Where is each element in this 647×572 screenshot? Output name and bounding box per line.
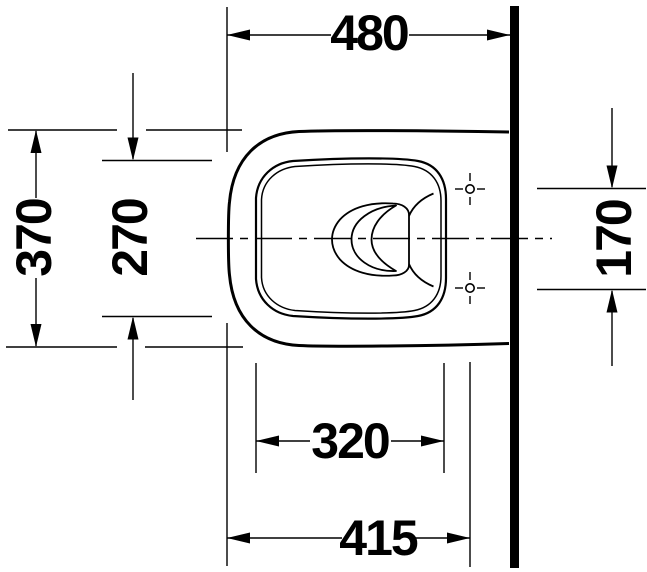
arrow-down-icon: [607, 166, 618, 189]
dimension-label-320: 320: [311, 413, 389, 469]
fixing-hole-marker-bottom: [455, 272, 485, 304]
arrow-up-icon: [607, 290, 618, 313]
technical-drawing-canvas: 480 370 270 170 320 415: [0, 0, 647, 572]
flush-rim-connector-top: [409, 194, 434, 217]
arrow-left-icon: [227, 30, 250, 41]
toilet-plan-view-drawing: 480 370 270 170 320 415: [0, 0, 647, 572]
dimension-label-270: 270: [102, 199, 158, 277]
dimension-overall-width: 370: [6, 130, 62, 347]
dimension-label-480: 480: [330, 5, 408, 61]
dimension-overall-depth: 480: [227, 5, 510, 61]
dimension-label-370: 370: [6, 199, 62, 277]
dimension-fixing-holes-spacing: 170: [586, 108, 642, 366]
dimension-bowl-inner-length: 320: [256, 413, 444, 469]
arrow-up-icon: [31, 130, 42, 153]
flush-rim-connector-bottom: [409, 264, 434, 287]
arrow-right-icon: [447, 533, 470, 544]
arrow-down-icon: [128, 138, 139, 161]
dimension-label-415: 415: [339, 510, 418, 566]
fixing-hole-icon: [466, 185, 474, 193]
arrow-down-icon: [31, 324, 42, 347]
arrow-left-icon: [227, 533, 250, 544]
fixing-hole-icon: [466, 284, 474, 292]
arrow-right-icon: [487, 30, 510, 41]
arrow-left-icon: [256, 436, 279, 447]
dimension-label-170: 170: [586, 200, 642, 278]
wall: [510, 6, 519, 568]
extension-lines: [6, 7, 646, 567]
arrow-up-icon: [128, 317, 139, 340]
dimension-bowl-inner-width: 270: [102, 73, 158, 400]
wall-line: [510, 6, 519, 568]
dimension-front-to-fixing-holes: 415: [227, 510, 470, 566]
fixing-hole-marker-top: [455, 173, 485, 205]
arrow-right-icon: [421, 436, 444, 447]
